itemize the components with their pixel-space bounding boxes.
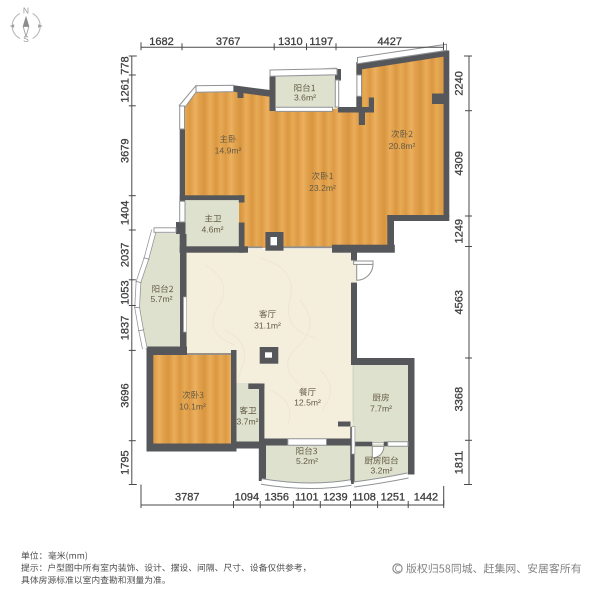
svg-text:3787: 3787 bbox=[175, 492, 199, 504]
svg-text:10.1m²: 10.1m² bbox=[179, 402, 206, 412]
svg-text:31.1m²: 31.1m² bbox=[254, 321, 281, 331]
svg-text:4563: 4563 bbox=[454, 290, 466, 314]
svg-text:12.5m²: 12.5m² bbox=[294, 398, 321, 408]
svg-text:1811: 1811 bbox=[454, 451, 466, 475]
svg-text:3679: 3679 bbox=[120, 139, 132, 163]
svg-text:S: S bbox=[23, 34, 29, 44]
svg-text:1261: 1261 bbox=[120, 78, 132, 102]
svg-text:3368: 3368 bbox=[454, 387, 466, 411]
svg-text:N: N bbox=[23, 5, 29, 15]
svg-text:3696: 3696 bbox=[120, 383, 132, 407]
svg-text:1108: 1108 bbox=[352, 492, 376, 504]
svg-text:1101: 1101 bbox=[295, 492, 319, 504]
svg-text:3.2m²: 3.2m² bbox=[371, 466, 393, 476]
svg-text:23.2m²: 23.2m² bbox=[309, 183, 336, 193]
svg-text:2240: 2240 bbox=[454, 71, 466, 95]
svg-text:5.2m²: 5.2m² bbox=[296, 456, 318, 466]
svg-text:1239: 1239 bbox=[323, 492, 347, 504]
svg-text:1094: 1094 bbox=[235, 492, 259, 504]
svg-text:7.7m²: 7.7m² bbox=[370, 404, 392, 414]
svg-text:14.9m²: 14.9m² bbox=[215, 146, 242, 156]
svg-text:1442: 1442 bbox=[414, 492, 438, 504]
svg-text:2037: 2037 bbox=[120, 243, 132, 267]
svg-text:4427: 4427 bbox=[378, 36, 402, 48]
svg-text:1249: 1249 bbox=[454, 219, 466, 243]
svg-text:1197: 1197 bbox=[309, 36, 333, 48]
svg-text:778: 778 bbox=[120, 56, 132, 74]
svg-text:4.6m²: 4.6m² bbox=[202, 225, 224, 235]
svg-text:1251: 1251 bbox=[381, 492, 405, 504]
svg-text:3767: 3767 bbox=[216, 36, 240, 48]
svg-text:3.7m²: 3.7m² bbox=[237, 417, 259, 427]
svg-text:3.6m²: 3.6m² bbox=[294, 93, 316, 103]
svg-text:5.7m²: 5.7m² bbox=[151, 294, 173, 304]
svg-text:1795: 1795 bbox=[120, 450, 132, 474]
svg-text:1310: 1310 bbox=[278, 36, 302, 48]
svg-text:4309: 4309 bbox=[454, 151, 466, 175]
svg-text:20.8m²: 20.8m² bbox=[389, 141, 416, 151]
svg-text:1837: 1837 bbox=[120, 316, 132, 340]
svg-text:1404: 1404 bbox=[120, 201, 132, 225]
svg-text:1356: 1356 bbox=[265, 492, 289, 504]
svg-text:1682: 1682 bbox=[149, 36, 173, 48]
svg-text:1053: 1053 bbox=[120, 280, 132, 304]
